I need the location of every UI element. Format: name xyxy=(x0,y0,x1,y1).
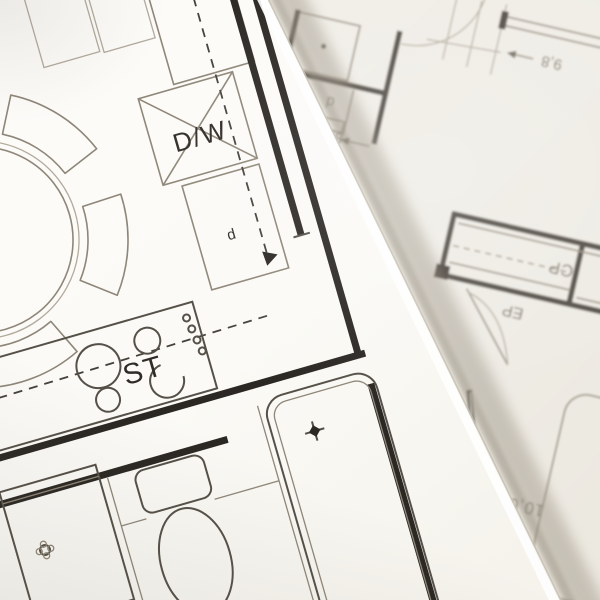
blueprint-photo: d 8,0 9,8 xyxy=(0,0,600,600)
blueprint-photo-canvas: d 8,0 9,8 xyxy=(0,0,600,600)
